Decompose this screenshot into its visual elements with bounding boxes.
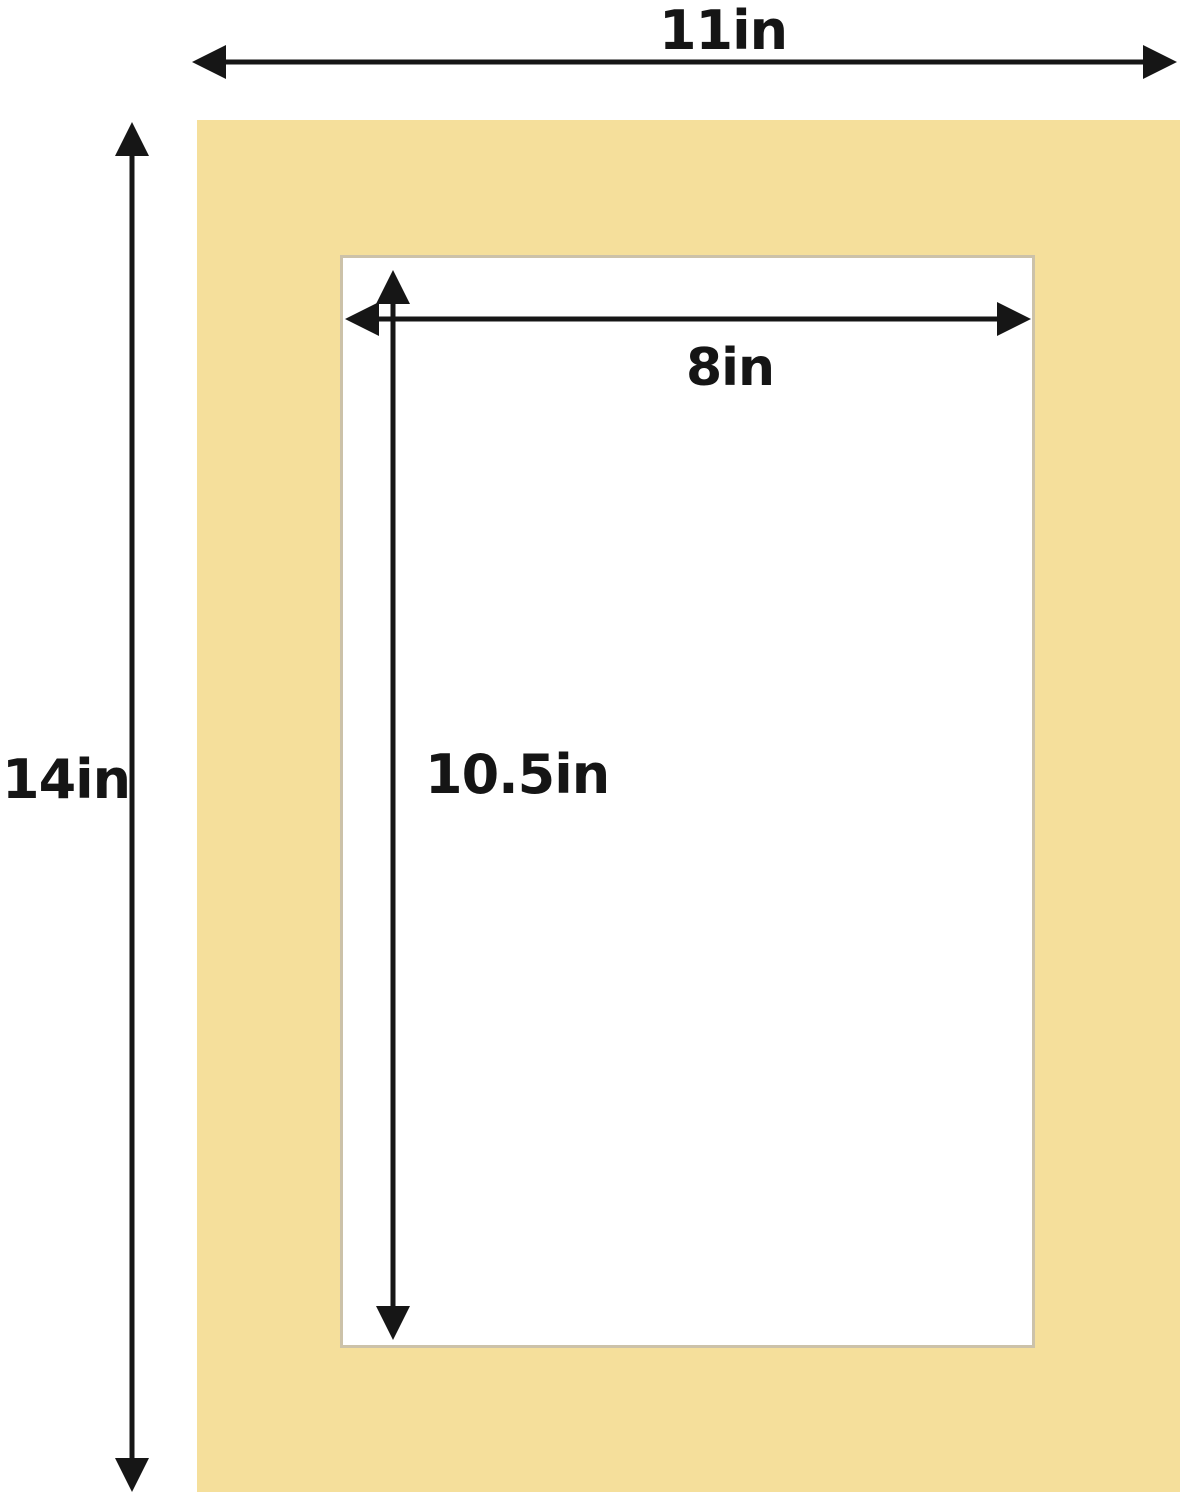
arrowhead-left-icon — [192, 45, 226, 79]
arrowhead-right-icon — [1143, 45, 1177, 79]
product-dimension-diagram: 11in 14in 8in 10.5in — [0, 0, 1185, 1500]
outer-height-label: 14in — [2, 753, 130, 807]
opening-height-label: 10.5in — [425, 748, 609, 802]
opening-width-label: 8in — [686, 342, 774, 394]
arrowhead-up-icon — [115, 122, 149, 156]
arrowhead-down-icon — [115, 1458, 149, 1492]
outer-width-label: 11in — [659, 4, 787, 58]
